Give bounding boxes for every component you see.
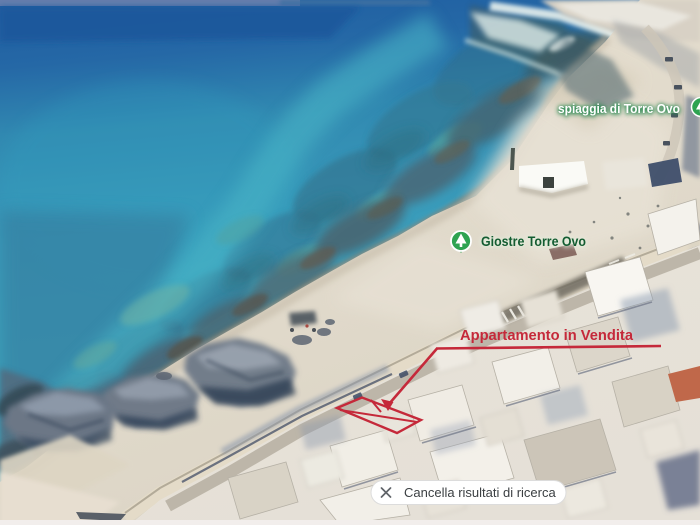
svg-text:spiaggia di Torre Ovo: spiaggia di Torre Ovo <box>558 101 680 116</box>
svg-text:Cancella risultati di ricerca: Cancella risultati di ricerca <box>404 485 556 500</box>
svg-text:Giostre Torre Ovo: Giostre Torre Ovo <box>481 234 586 249</box>
svg-text:Appartamento in Vendita: Appartamento in Vendita <box>460 327 634 344</box>
